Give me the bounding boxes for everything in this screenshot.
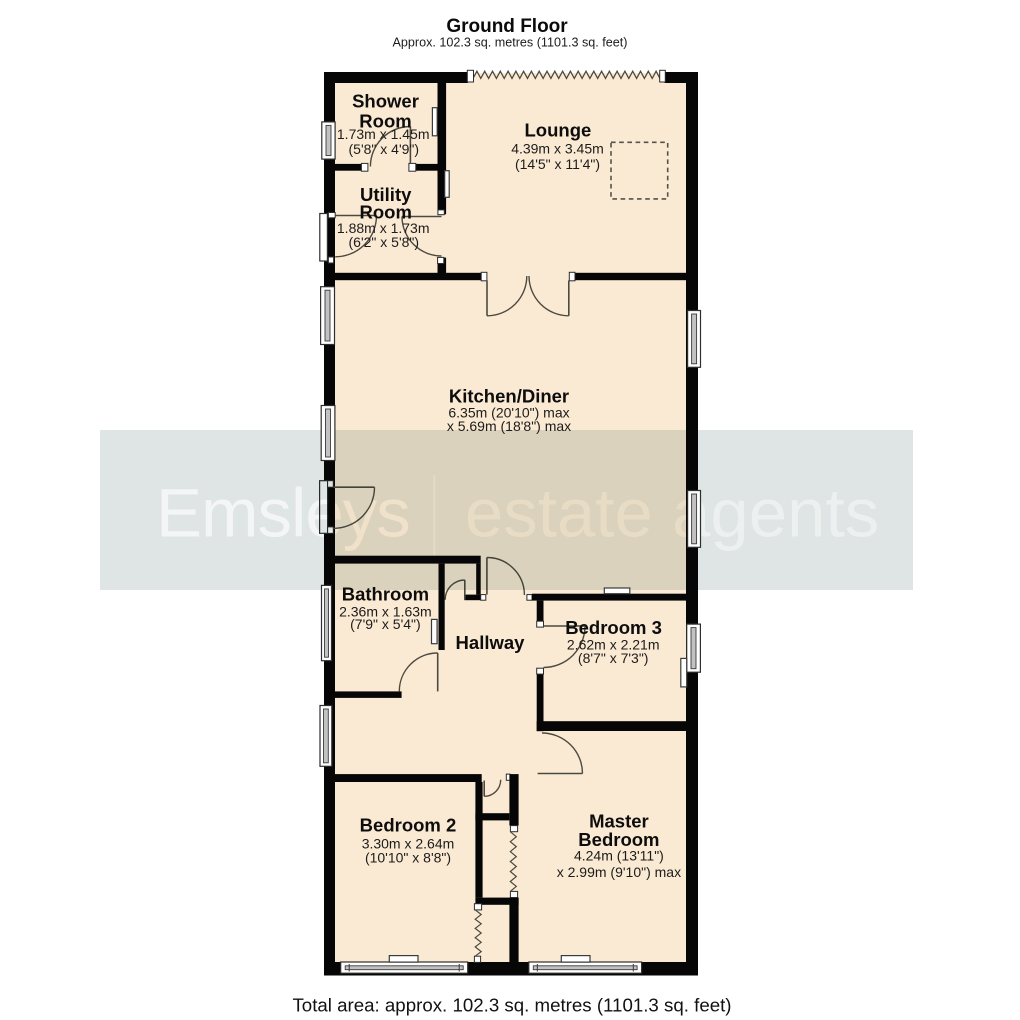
svg-text:estate agents: estate agents bbox=[465, 475, 879, 552]
svg-text:Bathroom: Bathroom bbox=[342, 584, 429, 605]
svg-text:4.24m (13'11"): 4.24m (13'11") bbox=[574, 848, 664, 864]
svg-text:Hallway: Hallway bbox=[456, 632, 526, 653]
svg-text:Approx. 102.3 sq. metres (1101: Approx. 102.3 sq. metres (1101.3 sq. fee… bbox=[393, 36, 628, 50]
svg-text:Total area: approx. 102.3 sq.: Total area: approx. 102.3 sq. metres (11… bbox=[292, 995, 731, 1016]
svg-text:x 5.69m (18'8") max: x 5.69m (18'8") max bbox=[447, 418, 571, 434]
svg-text:Lounge: Lounge bbox=[525, 120, 592, 141]
svg-text:(5'8" x 4'9"): (5'8" x 4'9") bbox=[349, 141, 420, 157]
svg-text:Emsleys: Emsleys bbox=[156, 475, 410, 552]
svg-text:Bedroom 2: Bedroom 2 bbox=[360, 815, 457, 836]
svg-text:(14'5" x 11'4"): (14'5" x 11'4") bbox=[515, 156, 600, 172]
svg-text:x 2.99m (9'10") max: x 2.99m (9'10") max bbox=[557, 864, 681, 880]
svg-text:Ground Floor: Ground Floor bbox=[446, 16, 568, 37]
svg-text:(8'7" x 7'3"): (8'7" x 7'3") bbox=[578, 650, 649, 666]
svg-text:(10'10" x 8'8"): (10'10" x 8'8") bbox=[365, 850, 451, 866]
svg-text:1.73m x 1.45m: 1.73m x 1.45m bbox=[337, 126, 430, 142]
svg-text:4.39m x 3.45m: 4.39m x 3.45m bbox=[511, 141, 604, 157]
svg-text:Shower: Shower bbox=[352, 91, 419, 112]
svg-text:Bedroom 3: Bedroom 3 bbox=[565, 617, 662, 638]
svg-text:(6'2" x 5'8"): (6'2" x 5'8") bbox=[349, 234, 420, 250]
svg-text:(7'9" x 5'4"): (7'9" x 5'4") bbox=[350, 616, 421, 632]
